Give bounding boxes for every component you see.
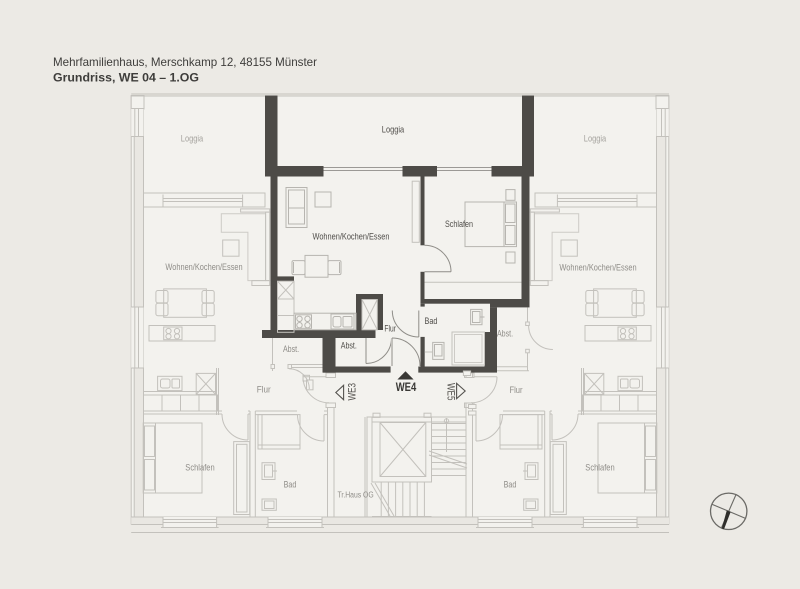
svg-text:Mehrfamilienhaus, Merschkamp 1: Mehrfamilienhaus, Merschkamp 12, 48155 M… xyxy=(53,56,317,69)
svg-text:Grundriss, WE 04 – 1.OG: Grundriss, WE 04 – 1.OG xyxy=(53,71,199,85)
svg-text:Flur: Flur xyxy=(510,385,523,396)
svg-text:Tr.Haus OG: Tr.Haus OG xyxy=(338,491,374,500)
svg-text:WE3: WE3 xyxy=(346,383,358,401)
svg-text:Schlafen: Schlafen xyxy=(445,219,473,230)
svg-text:Flur: Flur xyxy=(257,384,271,395)
svg-text:Wohnen/Kochen/Essen: Wohnen/Kochen/Essen xyxy=(313,232,390,243)
svg-text:Loggia: Loggia xyxy=(584,134,607,145)
svg-text:WE5: WE5 xyxy=(444,383,456,401)
svg-text:Loggia: Loggia xyxy=(181,134,204,145)
svg-text:Schlafen: Schlafen xyxy=(585,463,614,474)
svg-text:Abst.: Abst. xyxy=(341,341,357,352)
svg-text:Flur: Flur xyxy=(384,324,396,335)
svg-text:WE4: WE4 xyxy=(396,381,417,394)
svg-text:Abst.: Abst. xyxy=(283,344,299,355)
svg-text:Bad: Bad xyxy=(504,480,517,491)
svg-text:Wohnen/Kochen/Essen: Wohnen/Kochen/Essen xyxy=(559,263,636,274)
svg-text:Bad: Bad xyxy=(425,316,438,327)
svg-text:Wohnen/Kochen/Essen: Wohnen/Kochen/Essen xyxy=(165,262,242,273)
svg-text:Abst.: Abst. xyxy=(497,329,513,340)
svg-text:Bad: Bad xyxy=(284,480,297,491)
svg-text:Schlafen: Schlafen xyxy=(185,463,214,474)
svg-text:Loggia: Loggia xyxy=(382,125,405,136)
